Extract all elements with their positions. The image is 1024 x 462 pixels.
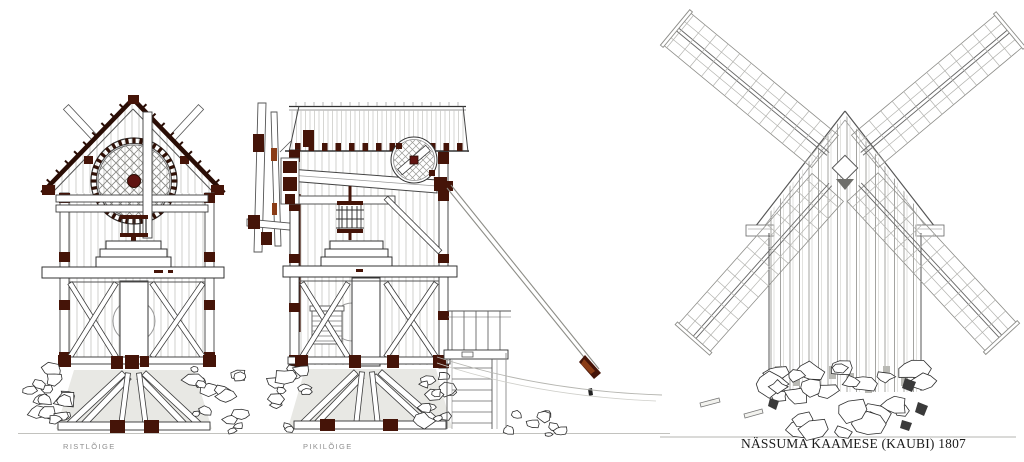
windmill-drawing xyxy=(0,0,1024,462)
front-elevation-view xyxy=(660,10,1024,441)
drawing-sheet: RISTLÕIGE PIKILÕIGE NÄSSUMA KAAMESE (KAU… xyxy=(0,0,1024,462)
longitudinal-section-view xyxy=(247,102,662,436)
longitudinal-section-label: PIKILÕIGE xyxy=(303,442,353,451)
drawing-title: NÄSSUMA KAAMESE (KAUBI) 1807 xyxy=(741,436,971,452)
cross-section-label: RISTLÕIGE xyxy=(63,442,116,451)
